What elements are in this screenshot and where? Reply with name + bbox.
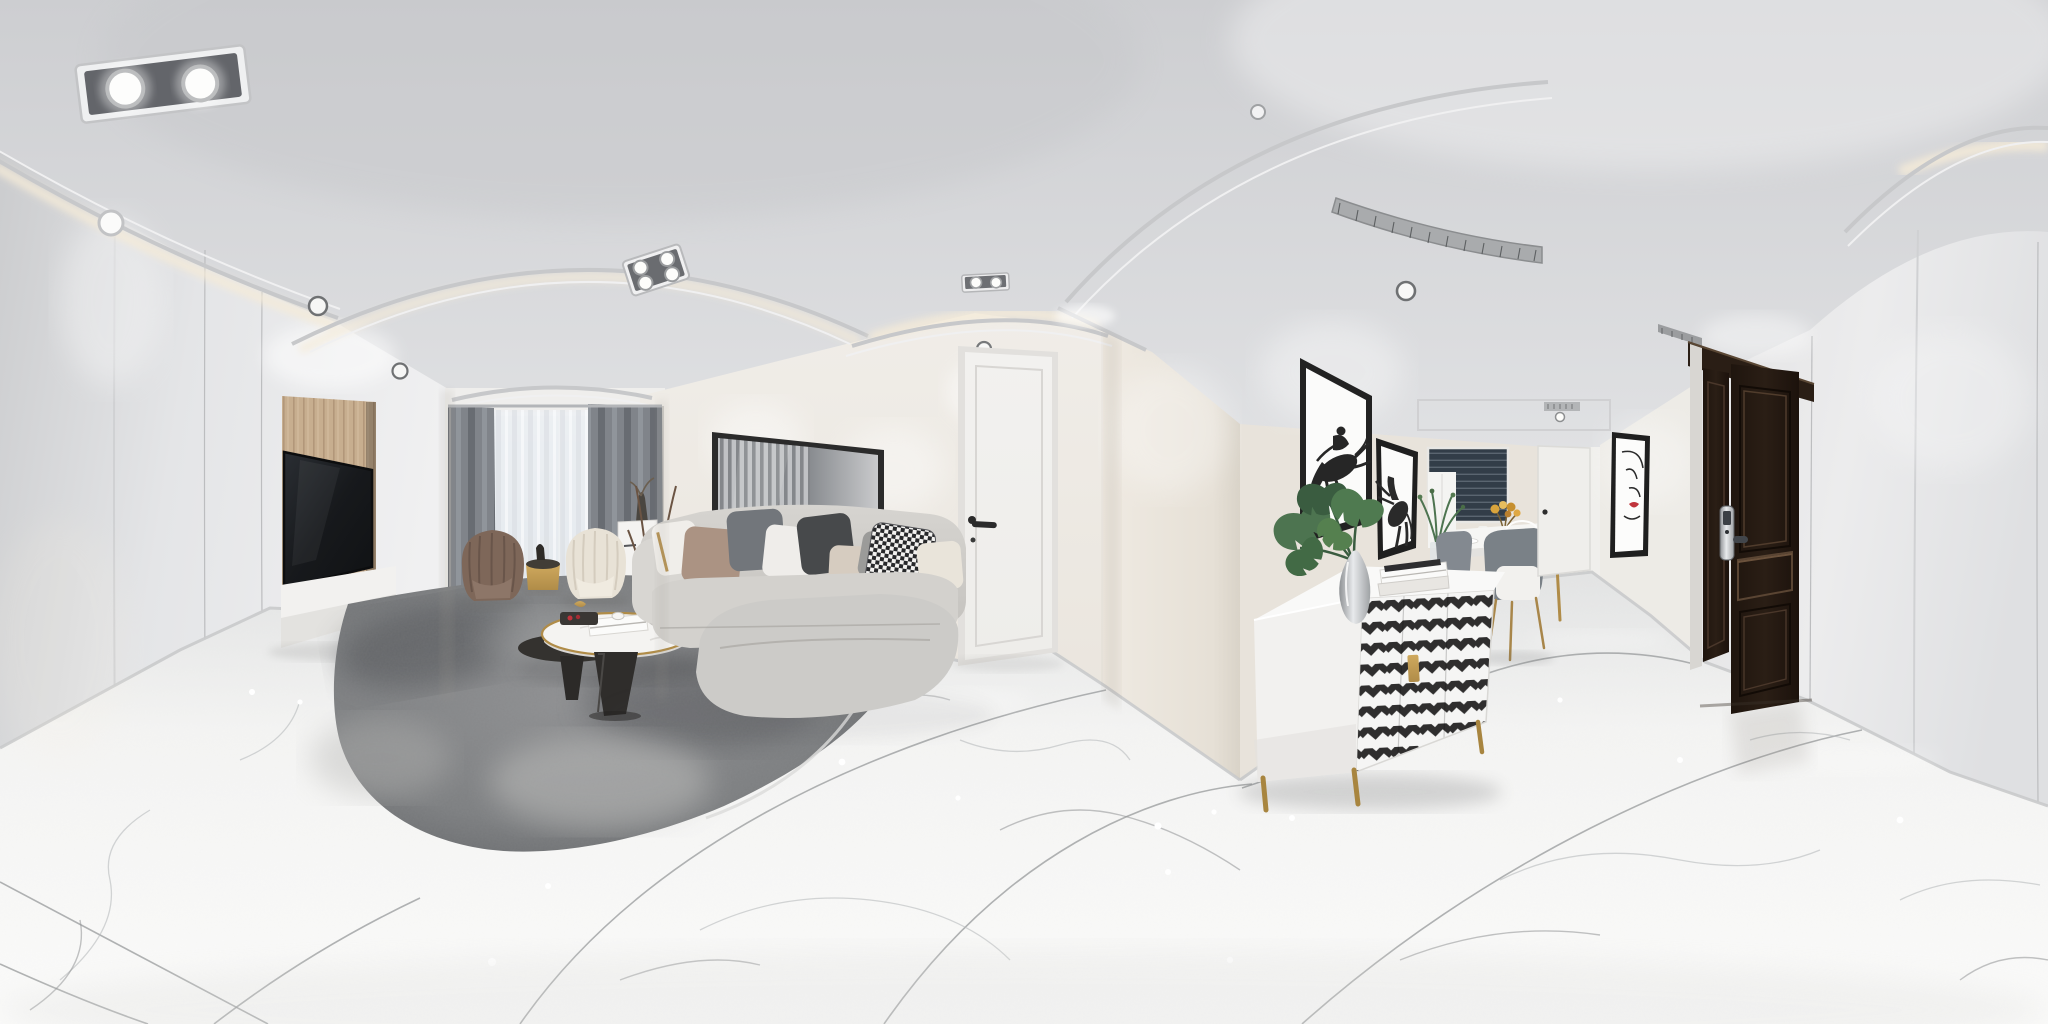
- entry-door: [1688, 342, 1814, 714]
- sideboard-gold-handle: [1407, 655, 1419, 683]
- door-shadow: [952, 656, 1064, 672]
- horse-art-2: [1376, 438, 1418, 560]
- downlight-icon: [1556, 413, 1565, 422]
- door-leaf: [965, 352, 1052, 660]
- far-door-handle: [1542, 509, 1547, 514]
- twin-spotlight-door-icon: [962, 273, 1010, 292]
- entry-door-jamb: [1690, 344, 1702, 670]
- hall-cove-light: [1055, 305, 1115, 327]
- door-keyhole: [971, 538, 976, 543]
- far-door: [1538, 446, 1590, 576]
- abstract-art: [1610, 432, 1650, 558]
- teacup: [612, 612, 624, 619]
- lock-lever: [1733, 536, 1748, 543]
- panorama-photo: [0, 0, 2048, 1024]
- interior-door: [952, 346, 1064, 672]
- panorama-canvas: [0, 0, 2048, 1024]
- door-floor-reflection: [1730, 702, 1810, 774]
